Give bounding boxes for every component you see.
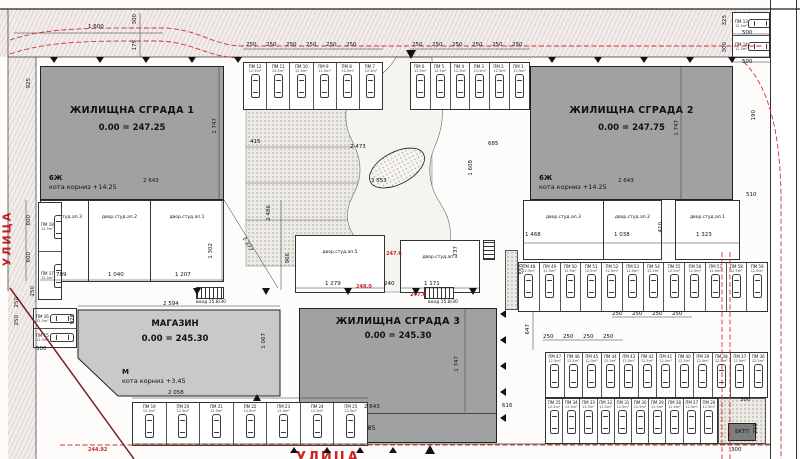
car-icon — [251, 74, 260, 98]
direction-marker — [234, 57, 242, 63]
direction-marker — [500, 336, 506, 344]
room-mid-4: двор.студ.ап.4 — [400, 240, 480, 293]
parking-stall: ПМ 4812.5m² — [519, 263, 540, 311]
car-icon — [711, 274, 720, 298]
direction-marker — [425, 445, 435, 454]
parking-row-c: ПМ 3512.5m²ПМ 3412.5m²ПМ 3312.5m²ПМ 3212… — [545, 398, 718, 444]
car-icon — [456, 74, 465, 98]
car-icon — [649, 274, 658, 298]
car-icon — [661, 364, 670, 388]
parking-row-a: ПМ 4812.5m²ПМ 4912.5m²ПМ 5012.5m²ПМ 5112… — [518, 262, 768, 312]
dimension-label: 1 377 — [241, 236, 254, 253]
car-icon — [643, 364, 652, 388]
dimension-label: 616 — [502, 403, 513, 409]
car-icon — [50, 333, 74, 342]
parking-stall: ПМ 5912.5m² — [747, 263, 767, 311]
parking-stall: ПМ 2812.5m² — [666, 399, 683, 443]
parking-stall: ПМ 1812.5m² — [39, 203, 61, 252]
parking-stall: ПМ 112.5m² — [510, 63, 529, 109]
car-icon — [246, 414, 255, 438]
studio-room: двор.студ.ап.1 — [676, 201, 739, 259]
car-icon — [524, 274, 533, 298]
direction-marker — [500, 310, 506, 318]
parking-pair-top-right-corner: ПМ 1312.5m²ПМ 1412.5m² — [732, 12, 770, 58]
parking-stall: ПМ 3112.5m² — [615, 399, 632, 443]
street-name-bottom: УЛИЦА — [296, 450, 360, 459]
studio-room: двор.студ.ап.5 — [296, 236, 384, 292]
building-2-level: 0.00 = 247.75 — [531, 123, 732, 133]
parking-stall: ПМ 2712.5m² — [684, 399, 701, 443]
parking-stall: ПМ 2412.5m² — [301, 403, 335, 445]
parking-stall: ПМ 3012.5m² — [632, 399, 649, 443]
parking-stall: ПМ 2312.5m² — [267, 403, 301, 445]
dimension-label: 510 — [746, 192, 757, 198]
shop-floors: М — [122, 368, 129, 376]
room-right-1: двор.студ.ап.1 — [675, 200, 740, 260]
parking-stall: ПМ 5312.5m² — [623, 263, 644, 311]
parking-stall: ПМ 3412.5m² — [563, 399, 580, 443]
parking-row-b: ПМ 4712.5m²ПМ 4612.5m²ПМ 4512.5m²ПМ 4412… — [545, 352, 768, 398]
car-icon — [343, 74, 352, 98]
parking-stall: ПМ 2012.5m² — [167, 403, 201, 445]
car-icon — [618, 410, 627, 434]
building-3-name: ЖИЛИЩНА СГРАДА 3 — [300, 316, 496, 327]
car-icon — [687, 410, 696, 434]
direction-marker — [262, 288, 270, 295]
parking-stall: ПМ 1912.5m² — [133, 403, 167, 445]
parking-stall: ПМ 3812.5m² — [713, 353, 732, 397]
direction-marker — [142, 57, 150, 63]
parking-stall: ПМ 3312.5m² — [580, 399, 597, 443]
stairs-entrance-west — [196, 287, 224, 299]
parking-stall: ПМ 512.5m² — [431, 63, 451, 109]
car-icon — [545, 274, 554, 298]
parking-stall: ПМ 812.5m² — [337, 63, 360, 109]
dimension-label: 300 — [731, 447, 742, 453]
transformer-label: БКТП — [735, 429, 749, 435]
dimension-label: 415 — [250, 139, 261, 145]
dimension-label: 685 — [488, 141, 499, 147]
dimension-label: 2 473 — [350, 144, 366, 150]
parking-stall: ПМ 1212.5m² — [244, 63, 267, 109]
building-1-level: 0.00 = 247.25 — [41, 123, 223, 133]
parking-stall: ПМ 2112.5m² — [200, 403, 234, 445]
stairs-entrance-east — [424, 287, 454, 299]
dimension-label: 250 — [583, 334, 594, 340]
car-icon — [475, 74, 484, 98]
direction-marker — [188, 57, 196, 63]
car-icon — [515, 74, 524, 98]
street-name-left: УЛИЦА — [0, 211, 13, 267]
parking-stall: ПМ 612.5m² — [411, 63, 431, 109]
dimension-label: 966 — [285, 253, 291, 264]
dimension-label: 250 — [563, 334, 574, 340]
parking-stall: ПМ 5512.5m² — [664, 263, 685, 311]
car-icon — [366, 74, 375, 98]
parking-stall: ПМ 1412.5m² — [733, 36, 769, 58]
building-2-floors: 6Ж — [539, 175, 552, 182]
rooms-left-block: двор.студ.ап.3двор.студ.ап.2двор.студ.ап… — [40, 200, 224, 282]
site-plan-drawing: ЖИЛИЩНА СГРАДА 1 0.00 = 247.25 6Ж кота к… — [0, 0, 800, 459]
parking-stall: ПМ 1012.5m² — [290, 63, 313, 109]
car-icon — [732, 274, 741, 298]
car-icon — [607, 274, 616, 298]
car-icon — [587, 274, 596, 298]
parking-stall: ПМ 3912.5m² — [694, 353, 713, 397]
studio-room: двор.студ.ап.4 — [401, 241, 479, 292]
dimension-label: 1 067 — [261, 333, 267, 349]
transformer-station: БКТП — [728, 423, 756, 441]
parking-stall: ПМ 712.5m² — [360, 63, 382, 109]
car-icon — [212, 414, 221, 438]
parking-stall: ПМ 3212.5m² — [598, 399, 615, 443]
dimension-label: 190 — [751, 110, 757, 121]
direction-marker — [640, 57, 648, 63]
car-icon — [624, 364, 633, 388]
stairs-entrance-side — [483, 240, 495, 260]
studio-room: двор.студ.ап.1 — [151, 201, 223, 281]
parking-left-edge: ПМ 1812.5m²ПМ 1712.5m² — [38, 202, 62, 300]
car-icon — [297, 74, 306, 98]
direction-marker — [686, 57, 694, 63]
building-2-name: ЖИЛИЩНА СГРАДА 2 — [531, 105, 732, 116]
parking-stall: ПМ 5112.5m² — [581, 263, 602, 311]
car-icon — [753, 274, 762, 298]
car-icon — [670, 410, 679, 434]
parking-stall: ПМ 5412.5m² — [644, 263, 665, 311]
parking-stall: ПМ 4512.5m² — [583, 353, 602, 397]
car-icon — [628, 274, 637, 298]
parking-stall: ПМ 5212.5m² — [602, 263, 623, 311]
parking-stall: ПМ 2212.5m² — [234, 403, 268, 445]
building-1-name: ЖИЛИЩНА СГРАДА 1 — [41, 105, 223, 116]
building-1: ЖИЛИЩНА СГРАДА 1 0.00 = 247.25 6Ж кота к… — [40, 66, 224, 200]
parking-stall: ПМ 212.5m² — [490, 63, 510, 109]
parking-row-bottom-left: ПМ 1912.5m²ПМ 2012.5m²ПМ 2112.5m²ПМ 2212… — [132, 402, 368, 446]
parking-left-corner: ПМ 1612.5m²ПМ 1512.5m² — [33, 308, 77, 348]
dimension-label: 500 — [742, 59, 753, 65]
studio-room: двор.студ.ап.2 — [89, 201, 151, 281]
parking-row-top-right: ПМ 612.5m²ПМ 512.5m²ПМ 412.5m²ПМ 312.5m²… — [410, 62, 530, 110]
building-1-cornice: кота корниз +14.25 — [49, 184, 117, 191]
shop-level: 0.00 = 245.30 — [115, 334, 235, 344]
parking-stall: ПМ 4112.5m² — [657, 353, 676, 397]
dimension-label: 647 — [525, 324, 531, 335]
dimension-label: 250 — [603, 334, 614, 340]
car-icon — [54, 215, 61, 239]
dimension-label: 2 486 — [266, 205, 272, 221]
car-icon — [587, 364, 596, 388]
car-icon — [670, 274, 679, 298]
car-icon — [748, 19, 769, 28]
car-icon — [50, 314, 74, 323]
studio-room: двор.студ.ап.3 — [524, 201, 604, 259]
direction-marker — [548, 57, 556, 63]
car-icon — [416, 74, 425, 98]
car-icon — [754, 364, 763, 388]
car-icon — [279, 414, 288, 438]
car-icon — [717, 364, 726, 388]
car-icon — [704, 410, 713, 434]
planting-strip — [505, 250, 518, 310]
parking-row-top-left: ПМ 1212.5m²ПМ 1112.5m²ПМ 1012.5m²ПМ 912.… — [243, 62, 383, 110]
direction-marker — [389, 447, 397, 453]
car-icon — [584, 410, 593, 434]
parking-stall: ПМ 1712.5m² — [39, 252, 61, 300]
parking-stall: ПМ 5712.5m² — [706, 263, 727, 311]
direction-marker — [500, 388, 506, 396]
parking-stall: ПМ 5612.5m² — [685, 263, 706, 311]
building-2: ЖИЛИЩНА СГРАДА 2 0.00 = 247.75 6Ж кота к… — [530, 66, 733, 200]
rooms-right-block: двор.студ.ап.3двор.студ.ап.2 — [523, 200, 662, 260]
car-icon — [274, 74, 283, 98]
parking-stall: ПМ 4912.5m² — [540, 263, 561, 311]
car-icon — [690, 274, 699, 298]
car-icon — [550, 364, 559, 388]
parking-stall: ПМ 1512.5m² — [34, 329, 76, 348]
parking-stall: ПМ 5812.5m² — [727, 263, 748, 311]
direction-marker — [96, 57, 104, 63]
shop-name: МАГАЗИН — [115, 319, 235, 329]
parking-stall: ПМ 4712.5m² — [546, 353, 565, 397]
parking-stall: ПМ 4312.5m² — [620, 353, 639, 397]
car-icon — [145, 414, 154, 438]
car-icon — [680, 364, 689, 388]
direction-marker — [500, 362, 506, 370]
parking-stall: ПМ 2512.5m² — [334, 403, 367, 445]
building-1-floors: 6Ж — [49, 175, 62, 182]
car-icon — [346, 414, 355, 438]
parking-stall: ПМ 312.5m² — [470, 63, 490, 109]
building-2-cornice: кота корниз +14.25 — [539, 184, 607, 191]
car-icon — [748, 42, 769, 51]
car-icon — [636, 410, 645, 434]
parking-stall: ПМ 4412.5m² — [602, 353, 621, 397]
car-icon — [320, 74, 329, 98]
car-icon — [313, 414, 322, 438]
right-road — [770, 0, 797, 459]
entrance-label-west: вход 15.8/30 — [196, 300, 226, 305]
parking-stall: ПМ 2912.5m² — [649, 399, 666, 443]
car-icon — [567, 410, 576, 434]
parking-stall: ПМ 5012.5m² — [561, 263, 582, 311]
direction-marker — [500, 414, 506, 422]
car-icon — [566, 274, 575, 298]
dimension-label: 3 553 — [371, 178, 387, 184]
direction-marker — [594, 57, 602, 63]
dimension-label: 1 608 — [468, 160, 474, 176]
parking-stall: ПМ 912.5m² — [314, 63, 337, 109]
car-icon — [653, 410, 662, 434]
top-road — [0, 9, 770, 57]
car-icon — [436, 74, 445, 98]
car-icon — [54, 264, 61, 288]
car-icon — [550, 410, 559, 434]
car-icon — [178, 414, 187, 438]
parking-stall: ПМ 3512.5m² — [546, 399, 563, 443]
building-3-level: 0.00 = 245.30 — [300, 331, 496, 341]
dimension-label: 250 — [543, 334, 554, 340]
parking-stall: ПМ 3712.5m² — [731, 353, 750, 397]
dimension-label: 240 — [384, 281, 395, 287]
spot-elevation: 244.92 — [88, 447, 107, 453]
parking-stall: ПМ 4212.5m² — [639, 353, 658, 397]
parking-stall: ПМ 412.5m² — [451, 63, 471, 109]
car-icon — [601, 410, 610, 434]
car-icon — [569, 364, 578, 388]
parking-stall: ПМ 1112.5m² — [267, 63, 290, 109]
car-icon — [735, 364, 744, 388]
direction-marker — [253, 394, 261, 401]
shop-cornice: кота корниз +3.45 — [122, 377, 186, 385]
parking-stall: ПМ 1612.5m² — [34, 309, 76, 329]
entrance-label-east: вход 15.8/30 — [428, 300, 458, 305]
parking-stall: ПМ 1312.5m² — [733, 13, 769, 36]
car-icon — [495, 74, 504, 98]
dimension-label: 2 058 — [168, 390, 184, 396]
parking-stall: ПМ 4612.5m² — [565, 353, 584, 397]
car-icon — [606, 364, 615, 388]
direction-marker — [50, 57, 58, 63]
parking-stall: ПМ 2612.5m² — [701, 399, 717, 443]
car-icon — [698, 364, 707, 388]
studio-room: двор.студ.ап.2 — [604, 201, 661, 259]
room-mid-5: двор.студ.ап.5 — [295, 235, 385, 293]
parking-stall: ПМ 4012.5m² — [676, 353, 695, 397]
parking-stall: ПМ 3612.5m² — [750, 353, 768, 397]
dimension-label: 2 594 — [163, 301, 179, 307]
